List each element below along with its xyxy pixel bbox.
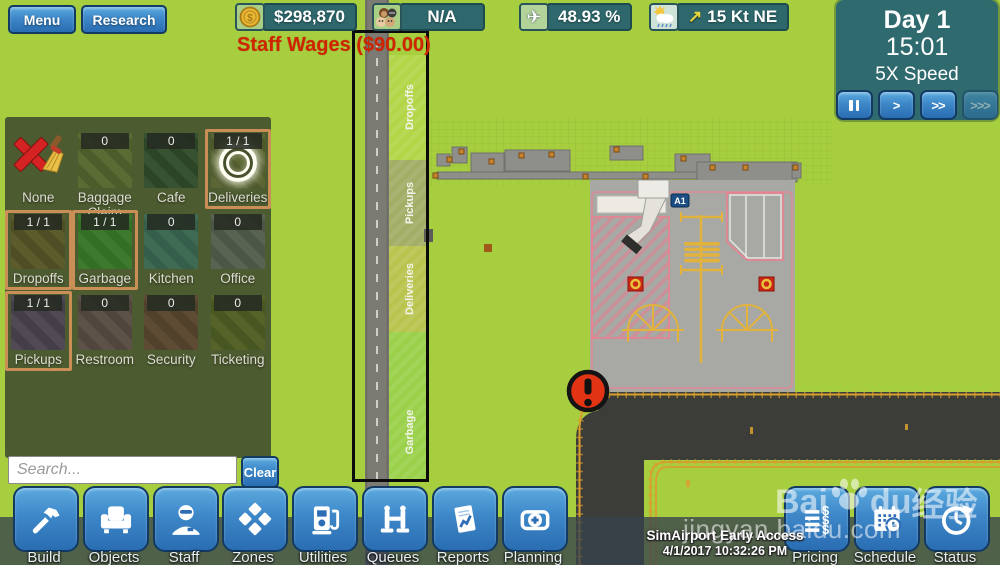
armchair-icon xyxy=(97,500,135,538)
staff-wages-note: Staff Wages ($90.00) xyxy=(237,34,431,57)
plane-icon: ✈ xyxy=(519,3,549,31)
play-icon: > xyxy=(893,98,900,113)
day-label: Day 1 xyxy=(884,6,951,35)
search-input[interactable] xyxy=(8,456,237,484)
zone-texture: 1 / 1 xyxy=(211,133,265,188)
zone-label: Cafe xyxy=(141,190,201,205)
zone-tile-none[interactable]: None xyxy=(5,129,72,209)
zone-active-spinner xyxy=(219,144,257,182)
zones-panel: None 0 BaggageClaim 0 Cafe 1 / 1 Deliver… xyxy=(5,117,271,458)
play-button[interactable]: > xyxy=(878,90,915,120)
zone-texture: 0 xyxy=(78,133,132,188)
objects-button[interactable] xyxy=(83,486,149,552)
version-stamp: SimAirport Early Access 4/1/2017 10:32:2… xyxy=(640,528,810,558)
passengers-value: N/A xyxy=(399,3,485,31)
fastest-button[interactable]: >>> xyxy=(962,90,999,120)
menu-button[interactable]: Menu xyxy=(8,5,76,34)
clock-panel: Day 1 15:01 5X Speed > >> >>> xyxy=(836,0,998,120)
zone-count-badge: 1 / 1 xyxy=(81,214,129,230)
build-label: Build xyxy=(4,549,84,565)
zone-texture: 1 / 1 xyxy=(11,295,65,350)
wind-arrow-icon: ↗ xyxy=(688,7,702,27)
speed-label: 5X Speed xyxy=(875,64,958,86)
zone-tile-security[interactable]: 0 Security xyxy=(138,291,205,371)
zone-count-badge: 1 / 1 xyxy=(14,214,62,230)
zone-texture: 1 / 1 xyxy=(78,214,132,269)
zone-tile-cafe[interactable]: 0 Cafe xyxy=(138,129,205,209)
zone-texture: 0 xyxy=(144,295,198,350)
zone-label: Security xyxy=(141,352,201,367)
zone-tile-pickups[interactable]: 1 / 1 Pickups xyxy=(5,291,72,371)
zone-texture: 0 xyxy=(144,133,198,188)
coin-icon: $ xyxy=(235,3,265,31)
warning-alert-icon[interactable] xyxy=(569,372,607,410)
zone-label: Restroom xyxy=(75,352,135,367)
zone-label: Ticketing xyxy=(208,352,268,367)
staff-label: Staff xyxy=(144,549,224,565)
zones-diamonds-icon xyxy=(236,500,274,538)
version-line2: 4/1/2017 10:32:26 PM xyxy=(640,544,810,558)
staff-button[interactable] xyxy=(153,486,219,552)
passengers-icon xyxy=(372,3,402,31)
weather-icon xyxy=(649,3,679,31)
pause-button[interactable] xyxy=(836,90,873,120)
zone-count-badge: 0 xyxy=(81,133,129,149)
zone-tile-kitchen[interactable]: 0 Kitchen xyxy=(138,210,205,290)
zone-tile-dropoffs[interactable]: 1 / 1 Dropoffs xyxy=(5,210,72,290)
schedule-calendar-icon xyxy=(868,500,906,538)
status-clock-plane-icon xyxy=(938,500,976,538)
pause-icon xyxy=(849,100,853,111)
schedule-label: Schedule xyxy=(845,549,925,565)
zone-label: Office xyxy=(208,271,268,286)
svg-text:$: $ xyxy=(247,13,253,24)
clear-button-label: Clear xyxy=(244,465,277,480)
queue-barrier-icon xyxy=(376,500,414,538)
construction-marker xyxy=(484,244,492,252)
passengers-indicator[interactable]: N/A xyxy=(372,3,485,31)
gate-badge: A1 xyxy=(671,194,689,207)
menu-button-label: Menu xyxy=(24,12,61,28)
zones-button[interactable] xyxy=(222,486,288,552)
clear-search-button[interactable]: Clear xyxy=(241,456,279,488)
zone-texture: 0 xyxy=(78,295,132,350)
queues-button[interactable] xyxy=(362,486,428,552)
svg-text:$: $ xyxy=(822,523,829,537)
queues-label: Queues xyxy=(353,549,433,565)
zone-count-badge: 0 xyxy=(214,214,262,230)
gate-label: A1 xyxy=(674,196,686,206)
zone-count-badge: 1 / 1 xyxy=(14,295,62,311)
hammer-icon xyxy=(27,500,65,538)
utilities-label: Utilities xyxy=(283,549,363,565)
schedule-button[interactable] xyxy=(854,486,920,552)
status-label: Status xyxy=(915,549,995,565)
zone-label: Deliveries xyxy=(208,190,268,205)
planning-plus-icon xyxy=(516,500,554,538)
weather-indicator[interactable]: ↗ 15 Kt NE xyxy=(649,3,789,31)
time-label: 15:01 xyxy=(886,33,949,62)
zone-count-badge: 0 xyxy=(81,295,129,311)
research-button[interactable]: Research xyxy=(81,5,167,34)
wind-value: ↗ 15 Kt NE xyxy=(676,3,789,31)
zone-label: Dropoffs xyxy=(8,271,68,286)
zone-label: Garbage xyxy=(75,271,135,286)
staff-person-icon xyxy=(167,500,205,538)
zone-count-badge: 0 xyxy=(147,214,195,230)
utilities-button[interactable] xyxy=(292,486,358,552)
zone-tile-deliveries[interactable]: 1 / 1 Deliveries xyxy=(205,129,272,209)
zone-count-badge: 0 xyxy=(147,133,195,149)
zone-count-badge: 0 xyxy=(214,295,262,311)
money-value: $298,870 xyxy=(262,3,357,31)
zone-tile-office[interactable]: 0 Office xyxy=(205,210,272,290)
fast-button[interactable]: >> xyxy=(920,90,957,120)
research-button-label: Research xyxy=(92,12,155,28)
zone-texture: 0 xyxy=(211,295,265,350)
zones-label: Zones xyxy=(213,549,293,565)
zone-label: None xyxy=(8,190,68,205)
reports-label: Reports xyxy=(423,549,503,565)
flights-indicator[interactable]: ✈ 48.93 % xyxy=(519,3,632,31)
zone-texture: 0 xyxy=(211,214,265,269)
zone-texture: 0 xyxy=(144,214,198,269)
reports-button[interactable] xyxy=(432,486,498,552)
fast-icon: >> xyxy=(931,98,944,113)
flights-value: 48.93 % xyxy=(546,3,632,31)
zone-label: Pickups xyxy=(8,352,68,367)
zone-tile-restroom[interactable]: 0 Restroom xyxy=(72,291,139,371)
zone-none-texture xyxy=(11,133,65,188)
zone-tile-garbage[interactable]: 1 / 1 Garbage xyxy=(72,210,139,290)
zone-label: Kitchen xyxy=(141,271,201,286)
zone-count-badge: 1 / 1 xyxy=(214,133,262,149)
selection-rectangle xyxy=(352,30,429,482)
planning-label: Planning xyxy=(493,549,573,565)
fuel-pump-icon xyxy=(306,500,344,538)
simairport-screen: Dropoffs Pickups Deliveries Garbage xyxy=(0,0,1000,565)
status-button[interactable] xyxy=(924,486,990,552)
money-indicator[interactable]: $ $298,870 xyxy=(235,3,357,31)
fastest-icon: >>> xyxy=(970,98,990,113)
zone-count-badge: 0 xyxy=(147,295,195,311)
zone-texture: 1 / 1 xyxy=(11,214,65,269)
objects-label: Objects xyxy=(74,549,154,565)
build-button[interactable] xyxy=(13,486,79,552)
version-line1: SimAirport Early Access xyxy=(640,528,810,543)
planning-button[interactable] xyxy=(502,486,568,552)
report-chart-icon xyxy=(446,500,484,538)
broom-icon xyxy=(33,135,67,173)
zone-tile-ticketing[interactable]: 0 Ticketing xyxy=(205,291,272,371)
